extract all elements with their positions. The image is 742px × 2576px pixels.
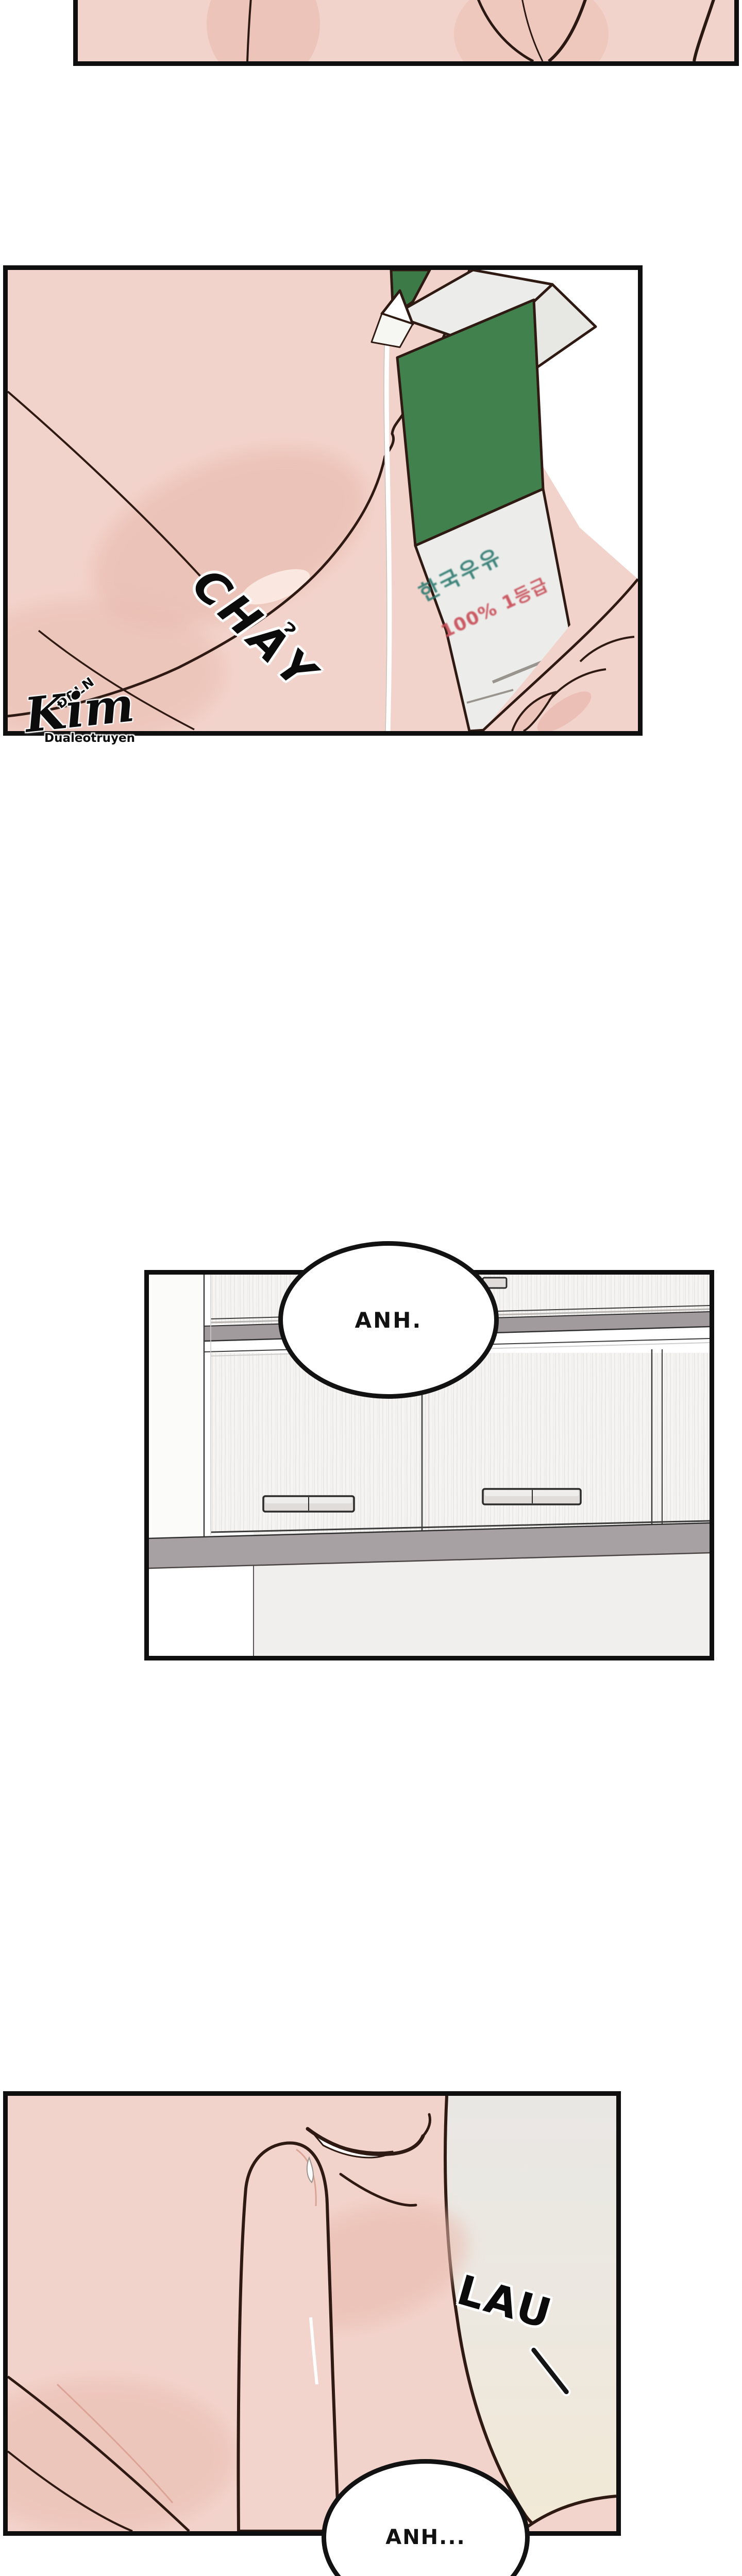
webtoon-page: CHẢY 한국우유 100% 1등급 ĐBLN Kim Dualeotruyen — [0, 0, 742, 2576]
wiping-finger — [239, 2143, 339, 2531]
speech-bubble-anh-kitchen: ANH. — [278, 1241, 499, 1399]
panel-drinking-milk: CHẢY 한국우유 100% 1등급 — [3, 265, 643, 736]
panel-neck-closeup — [73, 0, 739, 66]
watermark-site: Dualeotruyen — [44, 732, 135, 745]
panel-wiping-mouth: LAU — [3, 2091, 621, 2536]
cabinet-handle-left — [263, 1496, 354, 1512]
neck-closeup-art — [78, 0, 734, 61]
cabinet-handle-right — [483, 1489, 581, 1504]
speech-text: ANH... — [385, 2526, 466, 2549]
translator-watermark: ĐBLN Kim Dualeotruyen — [24, 678, 142, 750]
speech-text: ANH. — [355, 1308, 423, 1333]
